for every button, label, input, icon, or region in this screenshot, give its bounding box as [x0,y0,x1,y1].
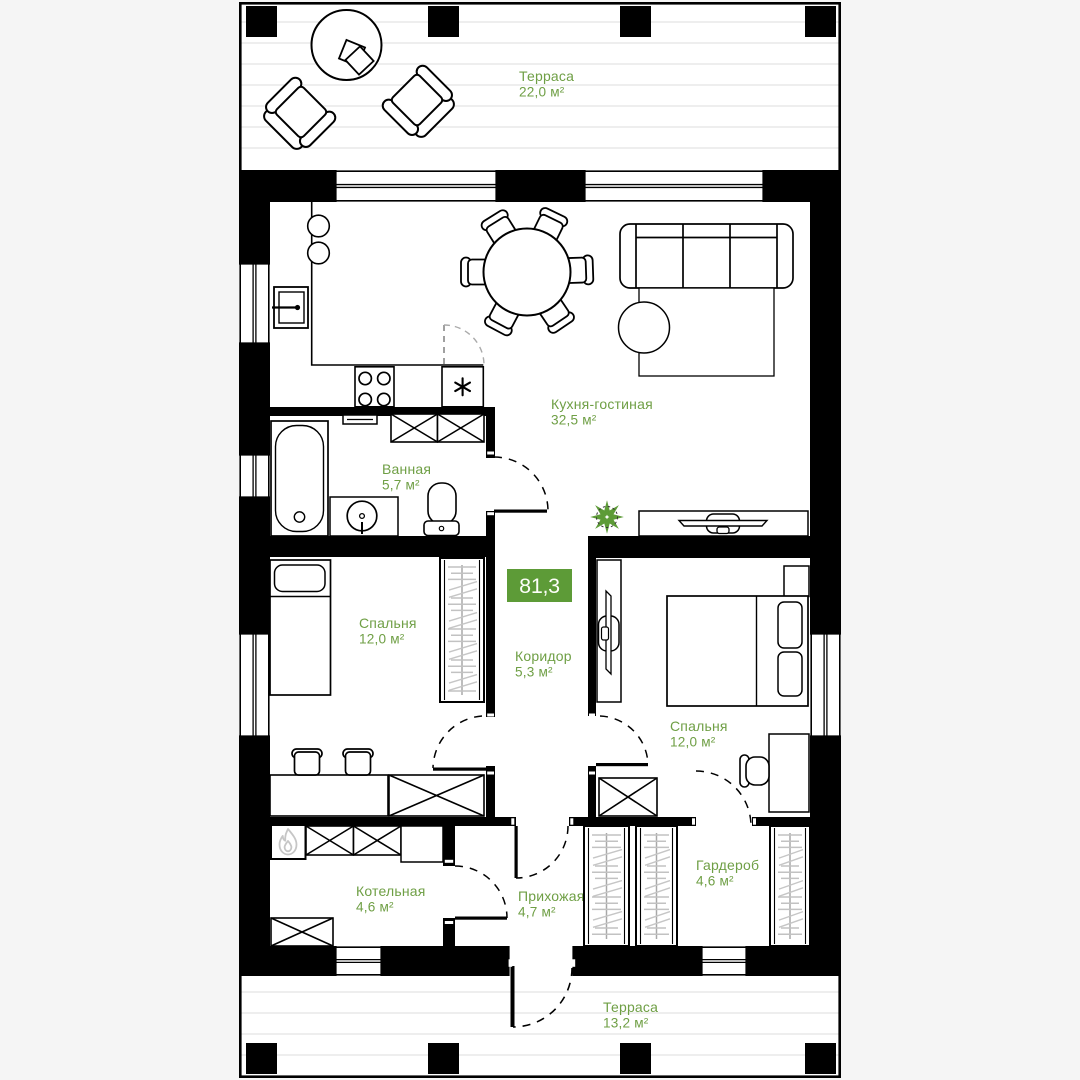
svg-text:13,2 м²: 13,2 м² [603,1016,649,1031]
svg-text:12,0 м²: 12,0 м² [670,735,716,750]
svg-text:5,7 м²: 5,7 м² [382,478,420,493]
svg-text:4,6 м²: 4,6 м² [356,900,394,915]
svg-text:5,3 м²: 5,3 м² [515,665,553,680]
svg-text:12,0 м²: 12,0 м² [359,632,405,647]
svg-text:22,0 м²: 22,0 м² [519,85,565,100]
svg-text:4,6 м²: 4,6 м² [696,874,734,889]
svg-text:Прихожая: Прихожая [518,888,584,904]
svg-text:Ванная: Ванная [382,461,431,477]
svg-text:Гардероб: Гардероб [696,857,759,873]
svg-text:Терраса: Терраса [519,68,574,84]
svg-text:32,5 м²: 32,5 м² [551,413,597,428]
svg-text:Кухня-гостиная: Кухня-гостиная [551,396,653,412]
svg-text:Котельная: Котельная [356,883,426,899]
svg-text:4,7 м²: 4,7 м² [518,905,556,920]
svg-text:Спальня: Спальня [670,718,728,734]
svg-text:Спальня: Спальня [359,615,417,631]
svg-text:81,3: 81,3 [519,574,560,598]
svg-text:Коридор: Коридор [515,648,572,664]
svg-text:Терраса: Терраса [603,999,658,1015]
